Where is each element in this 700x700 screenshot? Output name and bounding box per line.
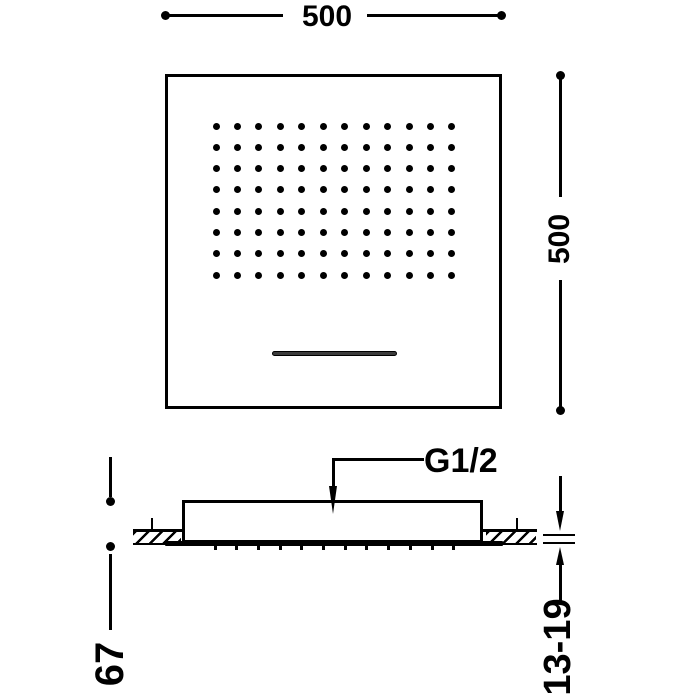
dim-ceiling-arrowhead-up-icon bbox=[556, 547, 564, 565]
dim-height-label: 67 bbox=[90, 619, 130, 700]
dim-width-line-right bbox=[367, 14, 502, 17]
connection-leader-vertical bbox=[332, 458, 335, 487]
dim-depth-line-top bbox=[559, 75, 562, 197]
dim-depth-end-dot-bottom bbox=[556, 406, 565, 415]
side-nozzle-tick bbox=[322, 546, 325, 550]
dim-height-end-dot-bottom bbox=[106, 542, 115, 551]
dim-depth-end-dot-top bbox=[556, 71, 565, 80]
dim-ceiling-label: 13-19 bbox=[539, 592, 577, 700]
shower-face-plate bbox=[165, 541, 503, 546]
side-nozzle-tick bbox=[300, 546, 303, 550]
shower-face-front-view bbox=[165, 74, 502, 409]
ceiling-tick-right bbox=[516, 518, 519, 530]
side-nozzle-tick bbox=[214, 546, 217, 550]
dim-ceiling-tick-lower bbox=[543, 542, 575, 545]
dim-width-end-dot-right bbox=[497, 11, 506, 20]
dim-depth-line-bottom bbox=[559, 280, 562, 410]
side-nozzle-tick bbox=[387, 546, 390, 550]
dim-width-end-dot-left bbox=[161, 11, 170, 20]
side-nozzle-tick bbox=[452, 546, 455, 550]
side-nozzle-tick bbox=[235, 546, 238, 550]
side-nozzle-tick bbox=[365, 546, 368, 550]
connection-leader-horizontal bbox=[334, 458, 424, 461]
connection-thread-label: G1/2 bbox=[424, 444, 498, 478]
technical-drawing-canvas: 500 500 G1/2 67 13-19 bbox=[0, 0, 700, 700]
side-nozzle-tick bbox=[431, 546, 434, 550]
dim-height-end-dot-top bbox=[106, 497, 115, 506]
ceiling-tick-left bbox=[151, 518, 154, 530]
dim-ceiling-tick-upper bbox=[543, 534, 575, 537]
ceiling-bottom-line-left bbox=[133, 543, 167, 545]
dim-depth-label: 500 bbox=[545, 197, 575, 281]
cascade-slot bbox=[272, 351, 397, 356]
dim-ceiling-arrowhead-down-icon bbox=[556, 511, 564, 531]
ceiling-bottom-line-right bbox=[501, 543, 537, 545]
dim-width-line-left bbox=[165, 14, 283, 17]
dim-height-line-top bbox=[109, 457, 112, 497]
side-nozzle-tick bbox=[279, 546, 282, 550]
dim-width-label: 500 bbox=[285, 2, 369, 32]
side-nozzle-tick bbox=[344, 546, 347, 550]
side-nozzle-tick bbox=[409, 546, 412, 550]
connection-arrowhead-icon bbox=[329, 486, 337, 514]
side-nozzle-tick bbox=[257, 546, 260, 550]
dim-ceiling-line-top bbox=[559, 476, 562, 512]
